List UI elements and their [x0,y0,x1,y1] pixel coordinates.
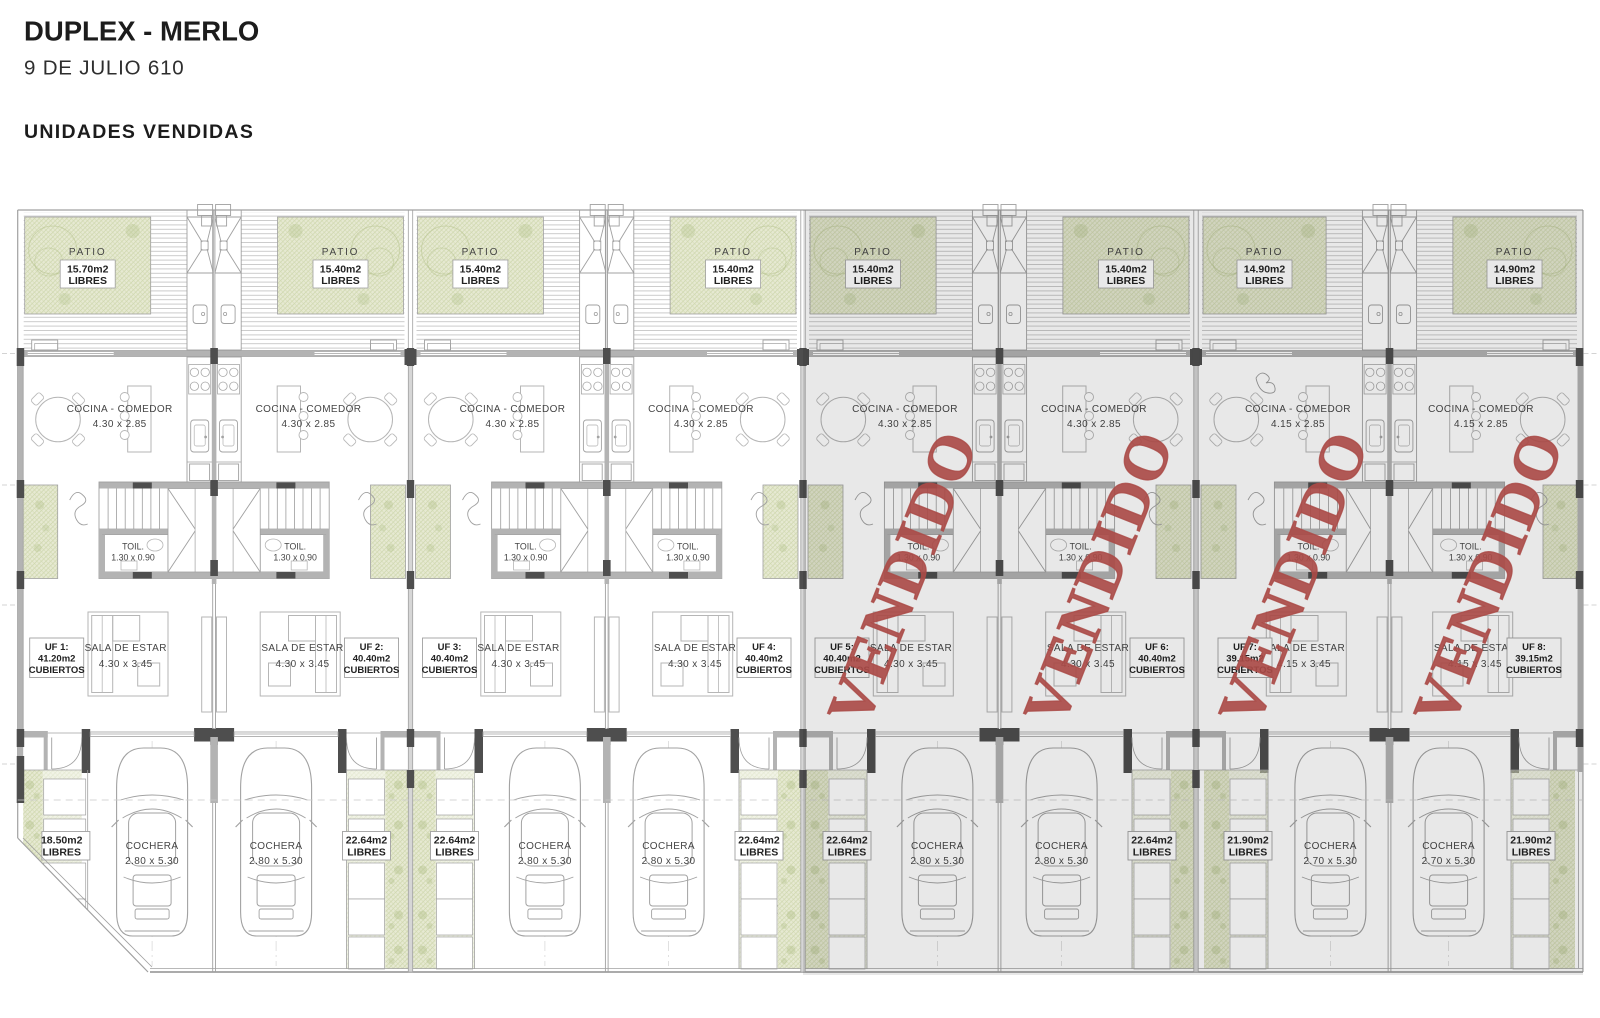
svg-text:4.30 x 2.85: 4.30 x 2.85 [674,419,728,430]
svg-text:UF 3:: UF 3: [438,642,462,653]
svg-text:18.50m2: 18.50m2 [41,835,83,847]
svg-text:PATIO: PATIO [714,247,752,258]
svg-text:1.30 x 0.90: 1.30 x 0.90 [666,553,710,563]
svg-text:2.80 x 5.30: 2.80 x 5.30 [249,856,303,867]
svg-text:22.64m2: 22.64m2 [346,835,388,847]
svg-text:UF 4:: UF 4: [752,642,776,653]
svg-text:PATIO: PATIO [462,247,500,258]
svg-text:40.40m2: 40.40m2 [431,654,469,665]
svg-text:PATIO: PATIO [322,247,360,258]
svg-text:TOIL.: TOIL. [122,542,144,552]
svg-text:UF 2:: UF 2: [360,642,384,653]
svg-text:COCHERA: COCHERA [518,841,571,852]
svg-text:9 DE JULIO 610: 9 DE JULIO 610 [24,57,184,80]
svg-text:SALA DE ESTAR: SALA DE ESTAR [654,643,736,654]
svg-text:SALA DE ESTAR: SALA DE ESTAR [261,643,343,654]
svg-text:LIBRES: LIBRES [347,847,386,859]
svg-text:4.30 x 3.45: 4.30 x 3.45 [276,659,330,670]
svg-text:SALA DE ESTAR: SALA DE ESTAR [477,643,559,654]
svg-text:UNIDADES VENDIDAS: UNIDADES VENDIDAS [24,121,254,143]
svg-text:COCINA - COMEDOR: COCINA - COMEDOR [67,404,173,415]
svg-text:40.40m2: 40.40m2 [353,654,391,665]
svg-text:CUBIERTOS: CUBIERTOS [29,665,85,676]
svg-text:COCINA - COMEDOR: COCINA - COMEDOR [648,404,754,415]
svg-text:2.80 x 5.30: 2.80 x 5.30 [125,856,179,867]
svg-text:1.30 x 0.90: 1.30 x 0.90 [504,553,548,563]
svg-text:15.70m2: 15.70m2 [67,264,109,276]
svg-text:PATIO: PATIO [69,247,107,258]
svg-text:4.30 x 2.85: 4.30 x 2.85 [93,419,147,430]
svg-text:4.30 x 2.85: 4.30 x 2.85 [282,419,336,430]
svg-text:TOIL.: TOIL. [284,542,306,552]
svg-text:1.30 x 0.90: 1.30 x 0.90 [273,553,317,563]
svg-text:22.64m2: 22.64m2 [434,835,476,847]
svg-text:LIBRES: LIBRES [740,847,779,859]
svg-text:LIBRES: LIBRES [461,275,500,287]
svg-text:4.30 x 2.85: 4.30 x 2.85 [486,419,540,430]
svg-text:DUPLEX - MERLO: DUPLEX - MERLO [24,16,259,47]
svg-text:COCHERA: COCHERA [126,841,179,852]
svg-text:COCHERA: COCHERA [250,841,303,852]
svg-text:22.64m2: 22.64m2 [738,835,780,847]
svg-text:2.80 x 5.30: 2.80 x 5.30 [642,856,696,867]
svg-text:4.30 x 3.45: 4.30 x 3.45 [668,659,722,670]
svg-text:4.30 x 3.45: 4.30 x 3.45 [99,659,153,670]
svg-text:40.40m2: 40.40m2 [745,654,783,665]
svg-text:15.40m2: 15.40m2 [320,264,362,276]
svg-text:LIBRES: LIBRES [435,847,474,859]
svg-text:LIBRES: LIBRES [42,847,81,859]
svg-text:COCINA - COMEDOR: COCINA - COMEDOR [460,404,566,415]
svg-text:41.20m2: 41.20m2 [38,654,76,665]
svg-text:TOIL.: TOIL. [677,542,699,552]
svg-text:LIBRES: LIBRES [714,275,753,287]
svg-text:15.40m2: 15.40m2 [460,264,502,276]
svg-text:SALA DE ESTAR: SALA DE ESTAR [85,643,167,654]
svg-text:15.40m2: 15.40m2 [712,264,754,276]
svg-text:LIBRES: LIBRES [68,275,107,287]
svg-text:CUBIERTOS: CUBIERTOS [422,665,478,676]
svg-text:COCINA - COMEDOR: COCINA - COMEDOR [256,404,362,415]
svg-text:COCHERA: COCHERA [642,841,695,852]
svg-text:4.30 x 3.45: 4.30 x 3.45 [492,659,546,670]
svg-text:1.30 x 0.90: 1.30 x 0.90 [111,553,155,563]
svg-text:UF 1:: UF 1: [45,642,69,653]
svg-text:LIBRES: LIBRES [321,275,360,287]
svg-text:CUBIERTOS: CUBIERTOS [344,665,400,676]
svg-text:TOIL.: TOIL. [515,542,537,552]
svg-text:CUBIERTOS: CUBIERTOS [736,665,792,676]
svg-text:2.80 x 5.30: 2.80 x 5.30 [518,856,572,867]
